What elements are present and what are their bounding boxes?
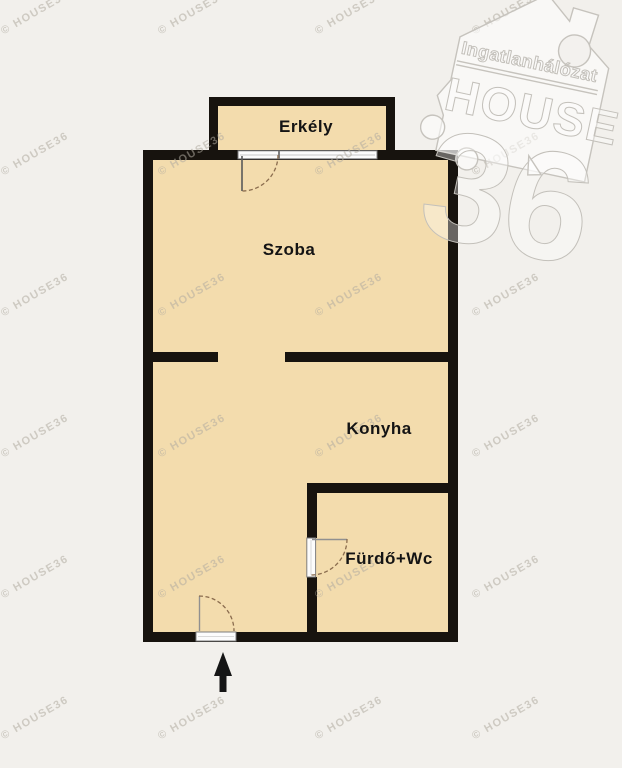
entrance-arrow-icon bbox=[214, 652, 232, 692]
bathroom-top-wall bbox=[307, 483, 458, 493]
balcony-top-wall bbox=[209, 97, 395, 106]
room-divider-wall-left bbox=[143, 352, 218, 362]
balcony-window bbox=[238, 151, 377, 159]
bathroom-left-wall-lower bbox=[307, 577, 317, 642]
apartment-left-wall bbox=[143, 150, 153, 642]
room-label: Szoba bbox=[263, 240, 316, 260]
floorplan-drawing bbox=[0, 0, 622, 768]
bathroom-left-wall-upper bbox=[307, 483, 317, 538]
balcony-label: Erkély bbox=[279, 117, 333, 137]
floorplan-stage: Erkély Szoba Konyha Fürdő+Wc © HOUSE36© … bbox=[0, 0, 622, 768]
bathroom-label: Fürdő+Wc bbox=[345, 549, 433, 569]
apartment-right-wall bbox=[448, 150, 458, 642]
kitchen-label: Konyha bbox=[346, 419, 411, 439]
balcony-left-wall bbox=[209, 97, 218, 155]
balcony-right-wall bbox=[386, 97, 395, 155]
apartment-bottom-wall bbox=[143, 632, 458, 642]
room-divider-wall-right bbox=[285, 352, 458, 362]
